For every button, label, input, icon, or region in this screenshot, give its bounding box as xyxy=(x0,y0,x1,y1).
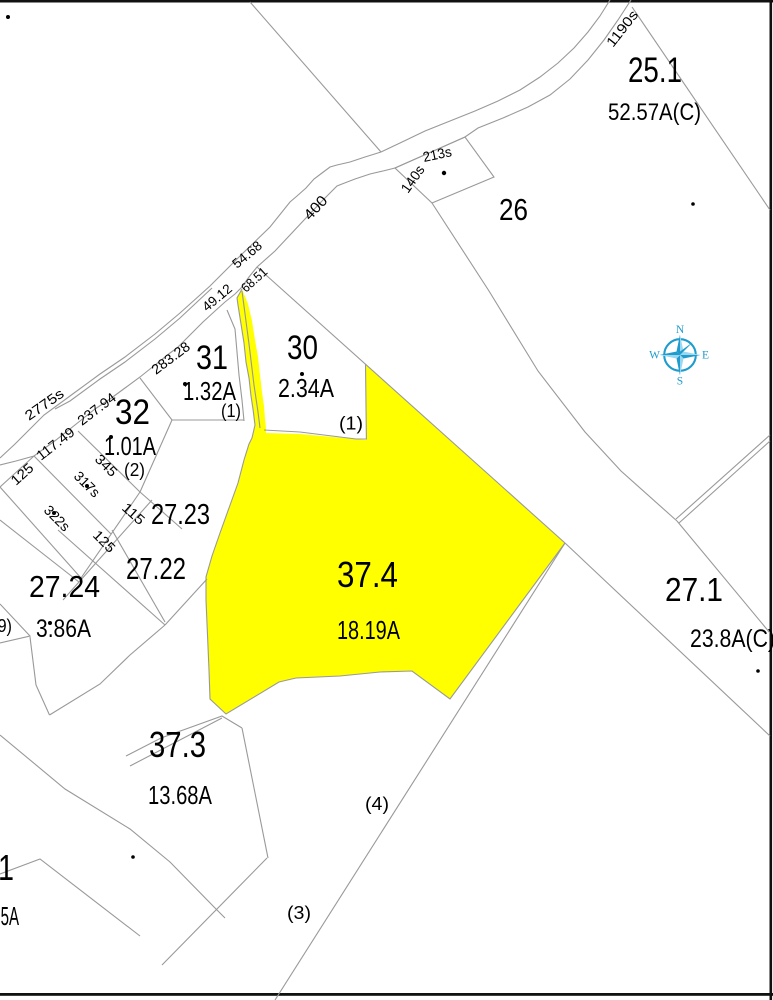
svg-text:52.57A(C): 52.57A(C) xyxy=(608,99,701,126)
svg-text:31: 31 xyxy=(196,339,228,377)
svg-text:27.24: 27.24 xyxy=(29,569,100,604)
svg-text:27.23: 27.23 xyxy=(151,499,210,531)
svg-text:37.3: 37.3 xyxy=(149,724,206,765)
svg-text:(1): (1) xyxy=(339,414,363,434)
svg-text:(2): (2) xyxy=(124,460,145,480)
svg-text:23.8A(C): 23.8A(C) xyxy=(690,625,773,653)
svg-text:25.1: 25.1 xyxy=(628,51,682,90)
svg-text:1: 1 xyxy=(0,847,14,888)
svg-text:32: 32 xyxy=(115,393,150,432)
svg-text:.65A: .65A xyxy=(0,901,19,931)
svg-text:(4): (4) xyxy=(365,794,389,814)
svg-text:(1): (1) xyxy=(221,401,241,421)
svg-text:27.1: 27.1 xyxy=(665,571,723,608)
svg-text:S: S xyxy=(677,376,683,388)
svg-text:30: 30 xyxy=(287,329,318,367)
svg-text:27.22: 27.22 xyxy=(126,551,186,586)
svg-text:13.68A: 13.68A xyxy=(148,780,213,810)
svg-text:37.4: 37.4 xyxy=(337,554,398,595)
svg-text:(9): (9) xyxy=(0,616,12,636)
svg-text:3.86A: 3.86A xyxy=(36,615,91,643)
svg-text:2.34A: 2.34A xyxy=(278,373,335,403)
svg-text:26: 26 xyxy=(499,192,528,227)
svg-text:N: N xyxy=(676,324,685,336)
svg-text:E: E xyxy=(702,350,709,362)
svg-text:W: W xyxy=(649,350,660,362)
svg-text:(3): (3) xyxy=(287,903,311,923)
svg-text:18.19A: 18.19A xyxy=(337,615,401,645)
